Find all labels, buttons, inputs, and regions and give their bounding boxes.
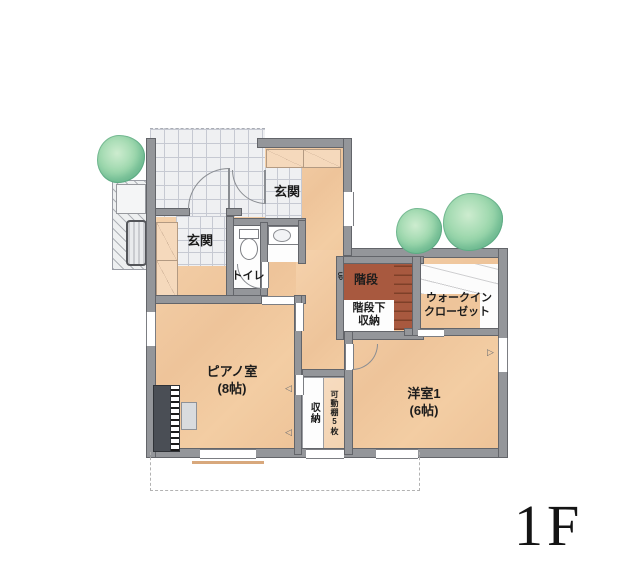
toilet-bowl (240, 238, 258, 260)
wall (257, 138, 352, 148)
wall (226, 216, 234, 296)
label-toilet: トイレ (232, 270, 265, 284)
floor-indicator: 1F (514, 492, 583, 559)
water-heater-unit (126, 220, 147, 266)
label-wic-1: ウォークイン (426, 292, 492, 306)
wall (336, 256, 424, 264)
wall (146, 295, 262, 304)
label-western-room-size: (6帖) (410, 403, 439, 419)
window-marker-icon: ▷ (487, 348, 494, 357)
label-wic-2: クローゼット (424, 306, 490, 320)
label-stairs: 階段 (354, 273, 378, 288)
folding-door-icon: ◁ (285, 384, 292, 393)
tree-icon (97, 135, 145, 183)
roof-overhang-outline (150, 452, 420, 491)
label-piano-room-size: (8帖) (218, 381, 247, 397)
label-storage-note: 可動棚5枚 (329, 390, 339, 436)
entrance-closet-left (266, 149, 304, 168)
window (146, 312, 156, 346)
piano-bench (181, 402, 197, 430)
door-leaf (228, 168, 230, 208)
label-genkan-lower: 玄関 (187, 233, 213, 249)
tree-icon (443, 193, 503, 251)
entrance-closet-right (303, 149, 341, 168)
wall (412, 256, 421, 336)
folding-door-icon: ◁ (285, 428, 292, 437)
door-opening (295, 303, 304, 331)
washbasin-bowl (273, 229, 291, 242)
wic-hatch-area (421, 264, 498, 294)
wall (302, 369, 346, 377)
wall (298, 220, 306, 264)
door-opening (295, 375, 304, 395)
wall (226, 208, 242, 216)
window (343, 192, 354, 226)
sliding-door-opening (262, 296, 294, 305)
label-under-stair-storage-2: 収納 (358, 315, 380, 329)
label-stairs-up: UP (334, 272, 342, 280)
floor-plan-canvas: ◁ ◁ ▷ 玄関 玄関 トイレ 階段 UP 階段下 収納 ウォークイン クローゼ… (0, 0, 625, 585)
outdoor-pad (116, 184, 146, 214)
front-door-leaf (264, 170, 266, 203)
label-storage: 収納 (307, 402, 320, 424)
terrace-step-line (192, 461, 264, 464)
label-under-stair-storage-1: 階段下 (353, 302, 386, 316)
piano-keys (170, 385, 180, 452)
shoe-cabinet-top (156, 222, 178, 262)
wall (336, 256, 344, 340)
window (498, 338, 508, 372)
label-genkan-upper: 玄関 (274, 184, 300, 200)
shoe-cabinet-bottom (156, 260, 178, 300)
wic-door-opening (418, 329, 444, 337)
label-piano-room: ピアノ室 (207, 364, 258, 380)
label-western-room: 洋室1 (407, 386, 440, 402)
